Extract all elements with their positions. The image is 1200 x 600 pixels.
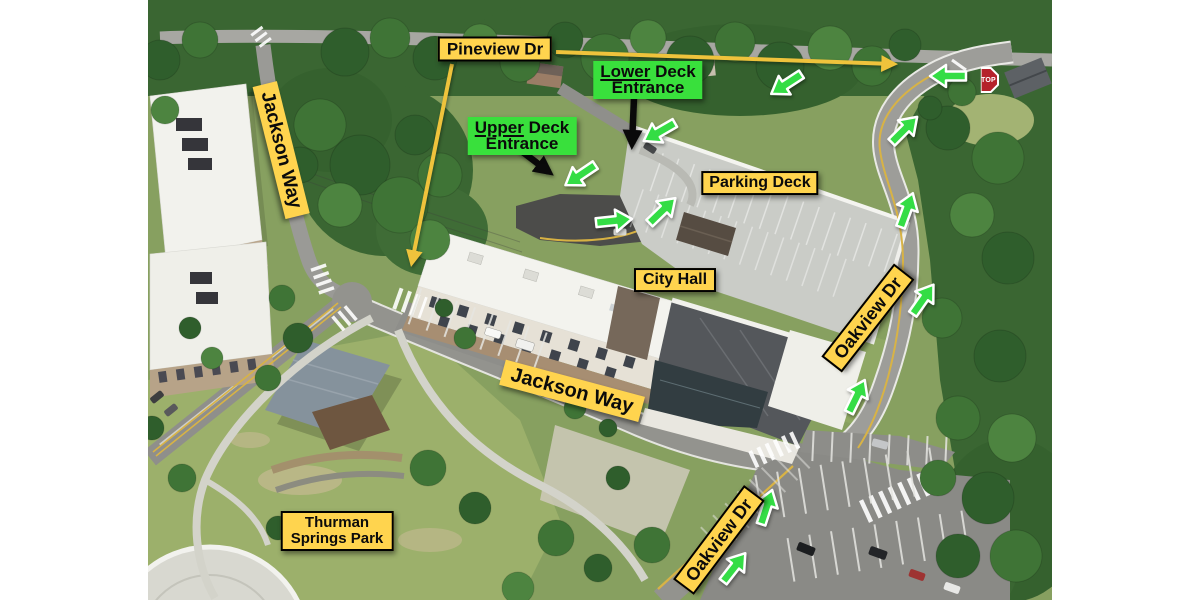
label-line2: Entrance [475,136,570,152]
label-text: City Hall [643,271,707,288]
label-line1: Thurman [291,515,384,531]
parking-deck-label: Parking Deck [701,171,818,195]
city-hall-label: City Hall [634,268,716,292]
label-line2: Springs Park [291,531,384,547]
street-label-text: Pineview Dr [447,39,543,58]
upper-deck-entrance-label: Upper Deck Entrance [468,117,577,155]
label-text: Parking Deck [709,174,810,191]
park-label-thurman-springs: Thurman Springs Park [281,511,394,551]
annotated-aerial-map: Pineview Dr Lower Deck Entrance Upper De… [0,0,1200,600]
lower-deck-entrance-label: Lower Deck Entrance [593,61,702,99]
street-label-pineview-dr: Pineview Dr [438,36,552,61]
label-line2: Entrance [600,80,695,96]
